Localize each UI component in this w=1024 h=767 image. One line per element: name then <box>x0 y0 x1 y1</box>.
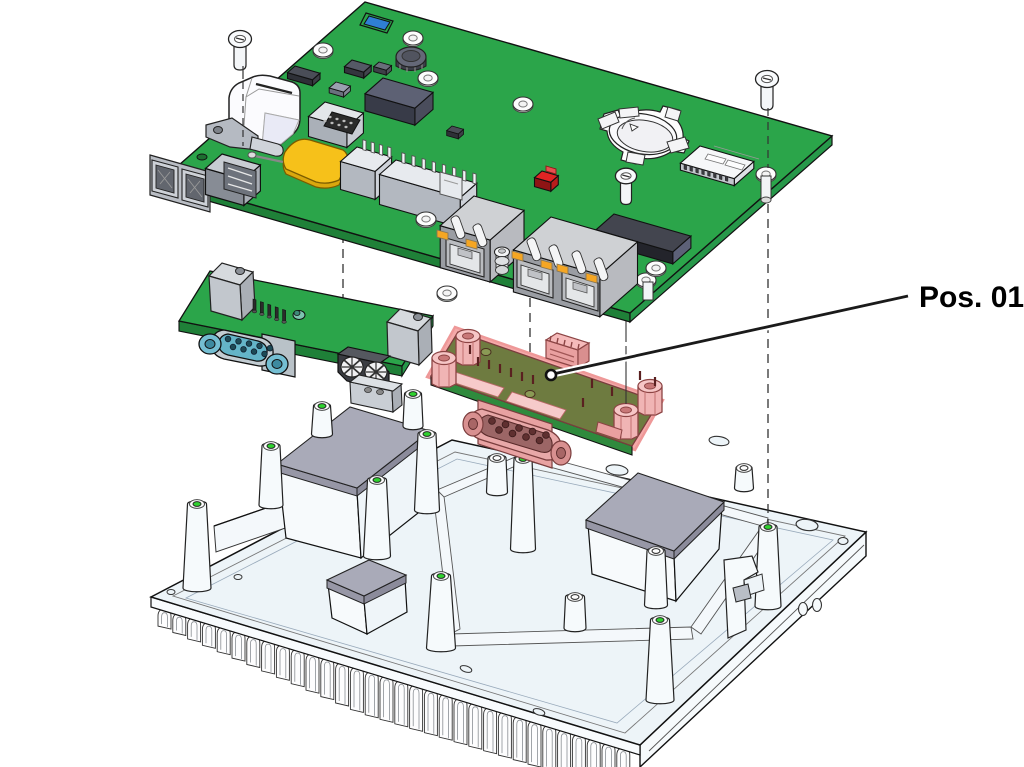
svg-text:Pos. 01: Pos. 01 <box>919 281 1024 314</box>
